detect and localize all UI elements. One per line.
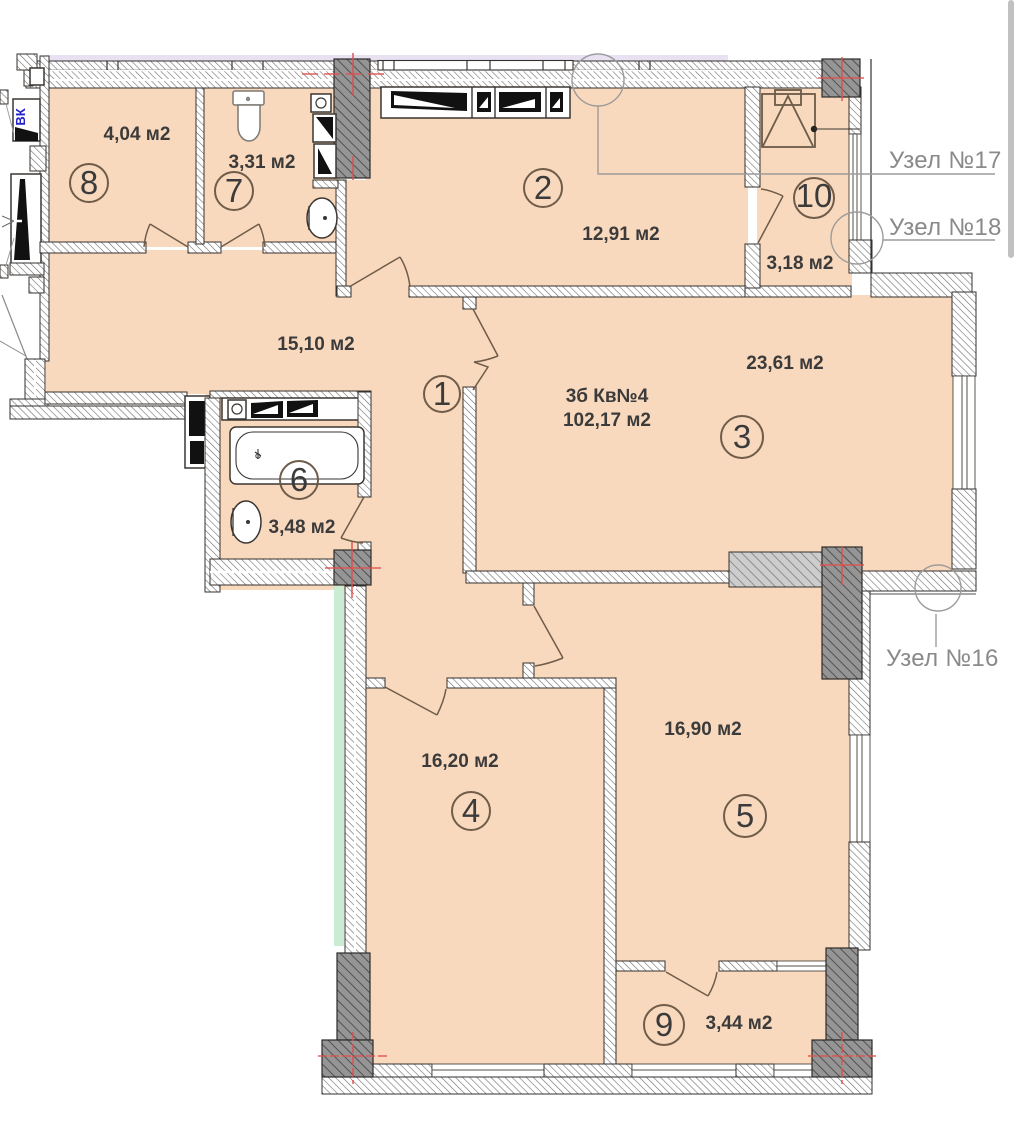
- svg-text:16,20 м2: 16,20 м2: [421, 751, 498, 772]
- svg-text:Узел №18: Узел №18: [889, 214, 1002, 241]
- svg-text:10: 10: [796, 177, 833, 214]
- svg-text:7: 7: [225, 172, 243, 209]
- svg-text:12,91 м2: 12,91 м2: [582, 224, 659, 245]
- svg-text:4: 4: [462, 792, 480, 829]
- svg-text:1: 1: [433, 375, 451, 412]
- svg-text:16,90 м2: 16,90 м2: [664, 719, 741, 740]
- svg-text:102,17 м2: 102,17 м2: [563, 410, 651, 431]
- svg-text:Узел №17: Узел №17: [889, 147, 1002, 174]
- svg-text:4,04 м2: 4,04 м2: [104, 124, 171, 145]
- svg-text:23,61 м2: 23,61 м2: [746, 353, 823, 374]
- svg-text:Узел №16: Узел №16: [886, 645, 999, 672]
- svg-text:3,48 м2: 3,48 м2: [269, 517, 336, 538]
- svg-text:15,10 м2: 15,10 м2: [277, 334, 354, 355]
- svg-text:5: 5: [736, 797, 754, 834]
- svg-text:3,18 м2: 3,18 м2: [767, 253, 834, 274]
- svg-text:9: 9: [655, 1006, 673, 1043]
- svg-text:ВК: ВК: [13, 108, 28, 125]
- svg-text:3: 3: [733, 418, 751, 455]
- svg-text:3б Кв№4: 3б Кв№4: [566, 386, 649, 407]
- svg-text:3,44 м2: 3,44 м2: [706, 1013, 773, 1034]
- svg-text:6: 6: [290, 461, 308, 498]
- svg-text:8: 8: [80, 164, 98, 201]
- svg-text:3,31 м2: 3,31 м2: [229, 152, 296, 173]
- svg-text:2: 2: [534, 169, 552, 206]
